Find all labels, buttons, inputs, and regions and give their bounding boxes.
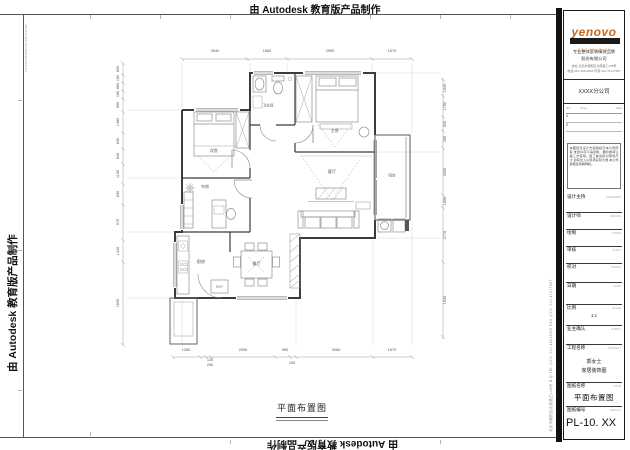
sheet-title-en: TITLE	[613, 384, 621, 388]
dimension-label: 400	[443, 136, 447, 142]
interior-walls	[182, 73, 375, 252]
dimension-label: 650	[116, 102, 120, 108]
field-en-label: SCALE	[612, 306, 621, 310]
dwg-number-row: 图纸编号 DWG.No PL-10. XX	[566, 406, 622, 439]
dimension-label: 1480	[116, 118, 120, 126]
field-row-client: 业主确认CLIENT	[566, 325, 622, 345]
field-row-designed: 设计主持DESIGNED	[566, 193, 622, 213]
dimension-label: 1930	[443, 296, 447, 304]
dimension-label: 150	[116, 91, 120, 97]
field-label: 审核	[567, 247, 576, 253]
field-row-draw: 绘制DRAW	[566, 229, 622, 247]
room-label-living: 客厅	[328, 169, 336, 175]
dwg-number-value: PL-10. XX	[566, 417, 616, 429]
dimension-label: 1570	[388, 49, 396, 53]
field-label: 设计主持	[567, 194, 585, 200]
dimension-label: 1570	[388, 348, 396, 352]
room-label-dining: 餐厅	[252, 261, 260, 267]
dimension-label: 1090	[443, 197, 447, 205]
dimension-label: 2990	[326, 49, 334, 53]
dimension-label: 1280	[182, 348, 190, 352]
entry-porch	[170, 298, 197, 344]
dimension-label: 970	[116, 219, 120, 225]
dimension-label: 1040	[443, 84, 447, 92]
branch-name: XXXX分公司	[564, 87, 624, 95]
room-label-master: 主卧	[331, 128, 339, 134]
project-value-1: 郭女士	[566, 358, 622, 365]
project-row: 工程名称 PROJECT 郭女士 家居装饰图	[566, 344, 622, 383]
divider	[564, 103, 624, 104]
room-label-bath: 卫生间	[263, 104, 274, 109]
project-value-2: 家居装饰图	[566, 367, 622, 374]
brand-sub-band: DECORATION	[570, 38, 620, 44]
dimension-label: 1790	[443, 102, 447, 110]
sheet-title-row: 图纸名称 TITLE 平面布置图	[566, 382, 622, 407]
dimension-label: 600	[116, 66, 120, 72]
dimension-label: 1440	[116, 247, 120, 255]
field-label: 绘制	[567, 230, 576, 236]
field-row-audit: 审核AUDIT	[566, 246, 622, 264]
dimension-label: 630	[116, 138, 120, 144]
bed-secondary	[194, 112, 249, 156]
dimension-label: 100	[289, 361, 295, 365]
field-label: 校对	[567, 264, 576, 270]
dimension-label: 3060	[332, 348, 340, 352]
sheet-title-value: 平面布置图	[566, 392, 622, 403]
dimension-label: 640	[116, 153, 120, 159]
sheet-title-label: 图纸名称	[567, 383, 585, 389]
room-label-study: 书房	[201, 184, 209, 190]
dimension-label: 3040	[211, 49, 219, 53]
ceiling-mark-bedroom2	[198, 156, 230, 172]
field-label: 设计师	[567, 213, 581, 219]
field-en-label: DRAW	[613, 231, 621, 235]
shoe-cabinet	[290, 234, 300, 288]
dwg-number-label: 图纸编号	[567, 407, 585, 413]
issue-col-issue: Issue	[580, 106, 587, 110]
field-row-proof: 校对PROOF	[566, 263, 622, 283]
issue-row: A	[566, 114, 622, 123]
field-row-design: 设计师DESIGN	[566, 212, 622, 230]
field-row-scale: 比例SCALE1:1	[566, 304, 622, 326]
plan-caption-text: 平面布置图	[277, 403, 327, 413]
field-en-label: AUDIT	[613, 248, 621, 252]
drawing-sheet: 由 Autodesk 教育版产品制作 由 Autodesk 教育版产品制作 由 …	[0, 0, 630, 450]
title-block: yenovo DECORATION 专业整体家装精装品牌 股份有限公司 地址:北…	[563, 10, 625, 440]
dimension-label: 660	[116, 83, 120, 89]
field-en-label: PROOF	[611, 265, 621, 269]
caption-underline	[276, 417, 328, 418]
dimension-label: 120	[207, 358, 213, 362]
dimension-label: 630	[116, 191, 120, 197]
issue-col-no: NO.	[566, 106, 571, 110]
dimension-label: 250	[207, 363, 213, 367]
dimension-label: 2930	[239, 348, 247, 352]
field-value: 1:1	[566, 313, 622, 318]
dimension-label: 990	[282, 348, 288, 352]
dimension-label: 2770	[443, 231, 447, 239]
dimension-label: 150	[116, 75, 120, 81]
floor-plan	[0, 0, 630, 450]
dimension-label: 1660	[263, 49, 271, 53]
divider	[564, 79, 624, 80]
field-label: 比例	[567, 305, 576, 311]
titleblock-bar	[556, 8, 562, 442]
company-address-2: 电话:010-44513506 传真:010-47217587	[564, 70, 624, 74]
dimension-label: 2000	[443, 168, 447, 176]
caption-underline-2	[276, 420, 328, 421]
field-row-date: 日期DATE	[566, 282, 622, 305]
room-label-balcony: 阳台	[388, 174, 395, 179]
room-label-bedroom2: 次卧	[210, 148, 218, 154]
room-label-kitchen: 厨房	[197, 259, 205, 265]
company-line-1: 专业整体家装精装品牌	[564, 49, 624, 55]
study-furniture	[184, 183, 236, 228]
dwg-number-en: DWG.No	[610, 408, 621, 412]
brand-name: yenovo	[571, 25, 616, 39]
plan-caption: 平面布置图	[262, 398, 342, 421]
field-en-label: CLIENT	[611, 327, 621, 331]
dimension-label: 940	[443, 121, 447, 127]
field-en-label: DATE	[614, 284, 621, 288]
project-label: 工程名称	[567, 345, 585, 351]
project-en: PROJECT	[608, 346, 621, 350]
fridge-label: REF	[216, 285, 223, 289]
field-en-label: DESIGN	[610, 214, 621, 218]
issue-col-date: Date	[616, 106, 622, 110]
dimension-label: 1100	[116, 170, 120, 178]
dimension-label: 1830	[116, 299, 120, 307]
company-contact-vertical: 北京市朝阳区北苑路乙108号 B.Q TEL (010) 010 4451350…	[548, 279, 553, 432]
field-label: 业主确认	[567, 326, 585, 332]
ceiling-mark-living	[303, 158, 361, 200]
field-label: 日期	[567, 283, 576, 289]
copyright-notice: 本图纸及设计方案版权归本公司所有,未经许可不得复制、翻印或转让第三方使用。施工前…	[567, 143, 621, 189]
washing-machine	[378, 219, 409, 232]
issue-table-header: NO. Issue Date	[566, 106, 622, 114]
company-line-2: 股份有限公司	[564, 56, 624, 62]
issue-row: B	[566, 123, 622, 132]
field-en-label: DESIGNED	[606, 195, 621, 199]
